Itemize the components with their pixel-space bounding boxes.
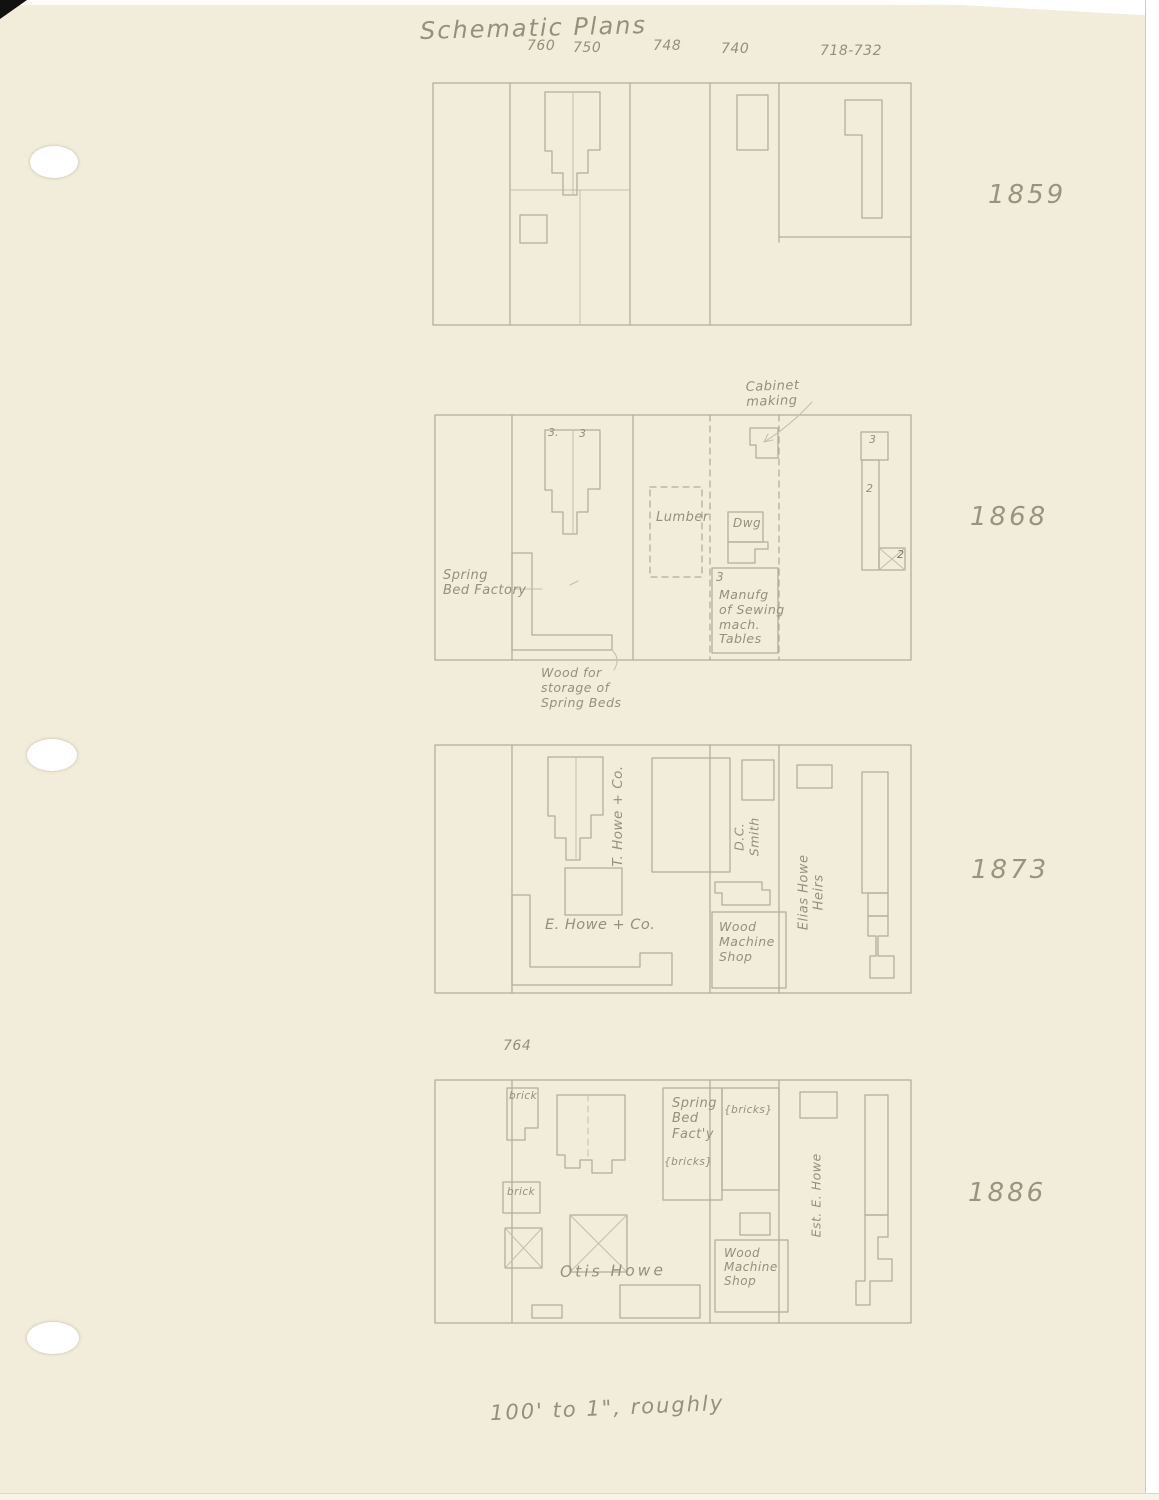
label-manufg-sewing-tables: Manufg of Sewing mach. Tables <box>719 588 785 647</box>
label-dwg: Dwg <box>733 516 761 530</box>
scale-note: 100' to 1", roughly <box>490 1391 725 1426</box>
street-number-750: 750 <box>573 40 601 57</box>
label-building-number: 3 <box>579 428 586 441</box>
scan-edge-bottom <box>0 1493 1159 1500</box>
label-wood-machine-shop-1873: Wood Machine Shop <box>719 920 775 964</box>
label-building-number: 3 <box>716 570 724 584</box>
label-dc-smith: D.C. Smith <box>732 797 762 877</box>
label-est-e-howe: Est. E. Howe <box>810 1135 825 1255</box>
plan-1859-lot-lines <box>433 83 911 325</box>
year-label-1886: 1886 <box>968 1178 1046 1209</box>
label-lumber: Lumber <box>656 510 709 525</box>
street-number-760: 760 <box>527 38 555 55</box>
punch-hole-bottom <box>27 1322 79 1354</box>
plan-1868-buildings <box>512 428 905 653</box>
label-wood-storage: Wood for storage of Spring Beds <box>541 666 622 710</box>
label-otis-howe: Otis Howe <box>560 1261 666 1281</box>
label-address-764: 764 <box>503 1038 531 1055</box>
label-e-howe-co: E. Howe + Co. <box>545 917 655 934</box>
label-brick-lower: brick <box>507 1186 535 1198</box>
label-cabinet-making: Cabinet making <box>745 378 800 411</box>
scan-edge-right <box>1145 0 1159 1500</box>
plan-1873-lot-lines <box>435 745 911 993</box>
label-building-number: 3 <box>869 434 876 447</box>
street-number-748: 748 <box>653 38 681 55</box>
year-label-1873: 1873 <box>971 855 1049 886</box>
label-building-number: 2 <box>866 483 873 496</box>
street-number-740: 740 <box>721 41 749 58</box>
plan-1859-buildings <box>520 92 882 243</box>
scan-corner-top-right <box>869 0 1159 16</box>
plan-1873-drawing <box>430 740 920 998</box>
scan-corner-black <box>0 0 27 19</box>
plan-1873-buildings <box>512 757 894 988</box>
punch-hole-middle <box>27 739 77 771</box>
plan-1859-drawing <box>430 78 920 330</box>
label-spring-bed-facty: Spring Bed Fact'y <box>672 1096 717 1142</box>
plan-1868-lot-lines <box>435 415 911 660</box>
punch-hole-top <box>30 146 78 178</box>
label-wood-machine-shop-1886: Wood Machine Shop <box>724 1246 778 1288</box>
year-label-1868: 1868 <box>970 502 1048 533</box>
label-building-number: 2 <box>897 549 904 562</box>
label-spring-bed-factory: Spring Bed Factory <box>443 568 526 599</box>
label-elias-howe-heirs: Elias Howe Heirs <box>797 832 828 952</box>
label-t-howe-co: T. Howe + Co. <box>611 756 627 876</box>
label-bricks-note: {bricks} <box>664 1156 713 1168</box>
scanned-page: Schematic Plans 760 750 748 740 718-732 … <box>0 0 1159 1500</box>
label-bricks-note: {bricks} <box>724 1104 773 1116</box>
year-label-1859: 1859 <box>988 180 1066 211</box>
label-brick-upper: brick <box>509 1090 537 1102</box>
street-number-718-732: 718-732 <box>820 43 882 60</box>
label-building-number: 3. <box>548 427 559 440</box>
